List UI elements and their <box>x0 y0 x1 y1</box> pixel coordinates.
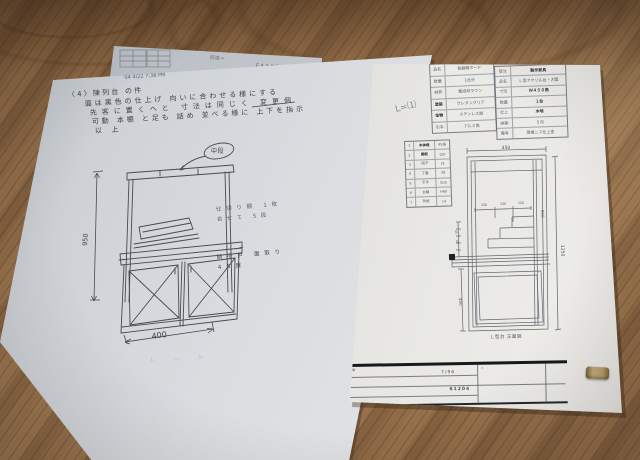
fax-route-label: 回送→ <box>210 54 225 62</box>
table-cell: 寸法 <box>496 87 512 97</box>
table-cell: １台 <box>512 96 566 107</box>
title-block-rule <box>349 375 477 378</box>
table-cell: 3 <box>406 160 415 169</box>
fax-stamp-box <box>147 50 170 67</box>
table-cell: t5 <box>435 159 450 168</box>
paper-clip <box>586 366 610 379</box>
callout-label: 中段 <box>211 147 224 155</box>
table-cell: 引手 <box>415 178 435 187</box>
shelf-annotation-line: 合せて 5段 <box>216 211 267 223</box>
small-dim-label: 120 <box>518 201 524 205</box>
table-cell: SUS <box>435 178 450 187</box>
table-cell: 5 <box>406 179 415 188</box>
title-block: 図 7/96 61204 ・ <box>349 360 568 407</box>
table-cell: 45角 <box>434 140 449 149</box>
title-block-rule <box>350 395 478 398</box>
photo-of-papers-on-wood-floor: 回送→ ＦＡＸ №2447541 受信 ’04 4/22 7:38 PM 〈4〉… <box>0 0 640 460</box>
shelf-annotation: 仕切り棚 1枚 合せて 5段 <box>215 200 277 223</box>
table-cell: 硝子 <box>415 160 435 169</box>
height-dimension-label: 950 <box>81 233 90 246</box>
table-cell: 本体框 <box>414 141 434 150</box>
drawing-scale: 7/96 <box>441 370 455 375</box>
dim-right-label: 1250 <box>559 245 565 257</box>
table-row: 7背板t4 <box>407 197 451 207</box>
dim-right-mid-label: 950 <box>540 210 545 218</box>
table-cell: 台輪 <box>416 188 436 197</box>
width-dimension-label: 400 <box>151 330 167 341</box>
dim-top-label: 450 <box>502 145 511 151</box>
table-cell: t4 <box>436 197 451 206</box>
table-cell: 納期 <box>497 118 513 128</box>
table-cell: 受注 <box>495 66 511 76</box>
drawing-dimension-labels: 450 1250 950 450 150 130 120 45 45 Ｌ型台 正… <box>454 145 565 340</box>
memo-text-block: 〈4〉陳列台 の件 面は黒色の仕上げ 向いに合わせる様にする 先客に置くヘと 寸… <box>68 85 304 135</box>
table-cell: 仕上 <box>496 108 512 118</box>
table-cell: 背板 <box>416 197 436 206</box>
table-cell: 7 <box>407 198 416 207</box>
table-row: 備考現場ニス仕上塗 <box>497 127 567 139</box>
table-cell: 丁番 <box>415 169 435 178</box>
table-cell: 木地 <box>512 106 566 117</box>
table-cell: 棚板 <box>414 150 434 159</box>
small-dim-label: 130 <box>500 202 506 206</box>
table-cell: 備考 <box>497 129 513 139</box>
table-cell: t20 <box>434 150 449 159</box>
table-cell: 2 <box>405 151 414 160</box>
table-cell: 引手 <box>433 122 448 133</box>
table-cell: 食器棚ボード <box>445 62 493 75</box>
title-block-dot: ・ <box>480 366 486 372</box>
shelf-annotation-line: 仕切り棚 1枚 <box>215 200 277 213</box>
elevation-drawing <box>452 146 561 331</box>
table-cell: H60 <box>436 187 451 196</box>
cabinet-sketch <box>119 165 242 333</box>
table-cell: 1台分 <box>446 74 494 87</box>
pencil-scribble: し ― ト <box>150 354 212 364</box>
table-cell: 現場ニス仕上塗 <box>513 127 567 138</box>
table-cell: 数量 <box>496 98 512 108</box>
table-cell: 品名 <box>495 77 511 87</box>
table-row: 引手アルミ角 <box>433 120 496 133</box>
table-cell: ウレタンクリア <box>447 97 495 110</box>
table-cell: 6 <box>407 189 416 198</box>
small-dim-label: 150 <box>481 203 487 207</box>
chain-dim-label: 45 <box>454 230 458 234</box>
pencil-note: L=⑴ <box>394 98 418 115</box>
table-cell: ステンレス脚 <box>447 108 495 121</box>
table-cell: 4 <box>406 170 415 179</box>
section-mark <box>449 254 455 260</box>
spec-table-b: 受注製作家具 品名Ｌ型アクリル台・大壁 寸法Ｗ４５０角 数量１台 仕上木地 納期… <box>494 63 569 139</box>
table-cell: 塗装 <box>432 99 447 110</box>
table-cell: ５月 <box>513 116 567 127</box>
table-cell: アルミ角 <box>448 120 496 133</box>
table-cell: 数量 <box>431 76 446 87</box>
table-cell: 金物 <box>432 110 447 121</box>
height-dimension <box>90 171 103 301</box>
dim-left-label: 450 <box>458 298 463 306</box>
table-cell: 38 <box>435 169 450 178</box>
table-cell: 材質 <box>431 87 446 98</box>
table-cell: 集成材ラワン <box>446 85 494 98</box>
memo-line: 以上 <box>95 125 120 135</box>
table-cell: 品名 <box>430 64 445 75</box>
table-cell: Ｌ型アクリル台・大壁 <box>511 75 565 86</box>
drawing-caption: Ｌ型台 正面図 <box>490 333 522 341</box>
title-block-corner-label: 図 <box>352 368 356 372</box>
spec-table-a: 品名食器棚ボード 数量1台分 材質集成材ラワン 塗装ウレタンクリア 金物ステンレ… <box>429 61 497 134</box>
table-cell: Ｗ４５０角 <box>512 85 566 96</box>
materials-table: 1本体框45角 2棚板t20 3硝子t5 4丁番38 5引手SUS 6台輪H60… <box>404 139 452 207</box>
table-cell: 製作家具 <box>511 65 565 76</box>
drawing-number: 61204 <box>449 387 470 392</box>
chain-dim-label: 45 <box>455 240 459 244</box>
table-cell: 1 <box>405 142 414 151</box>
